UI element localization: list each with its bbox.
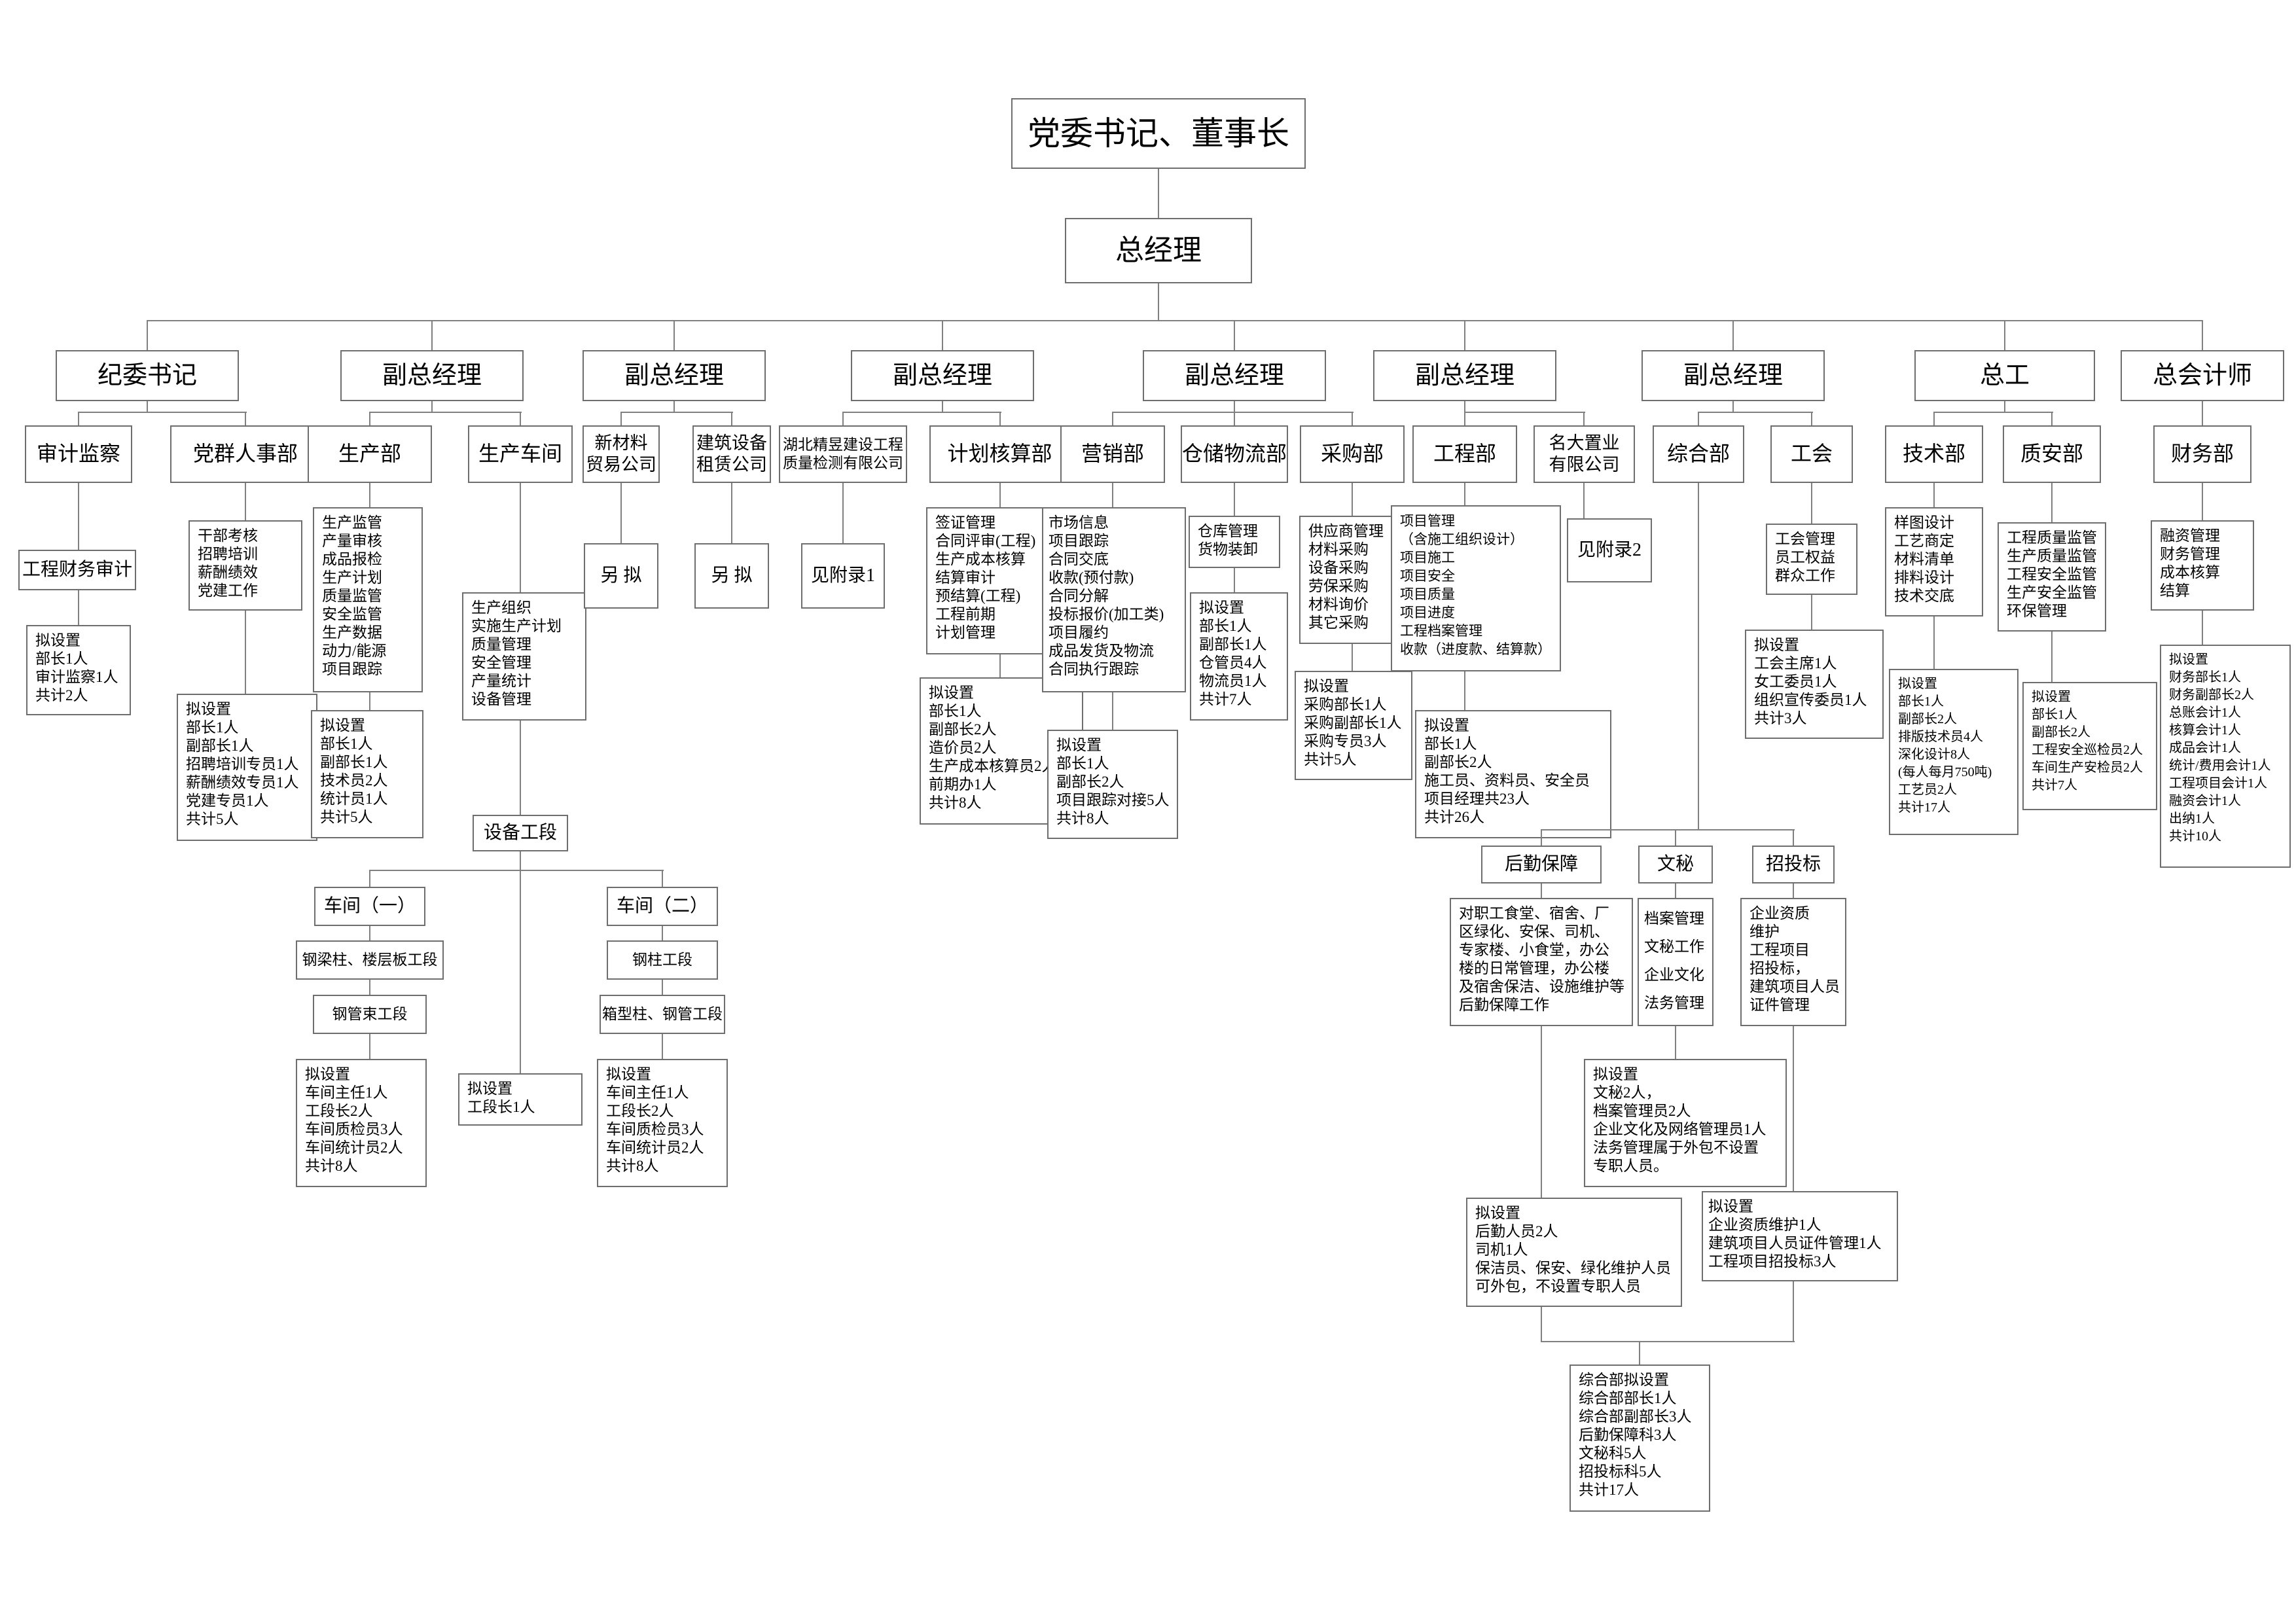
connector [1732,401,1734,412]
staffing-workshop-2: 拟设置 车间主任1人 工段长2人 车间质检员3人 车间统计员2人 共计8人 [597,1059,728,1187]
connector [245,611,246,694]
connector [431,321,433,350]
connector [1234,483,1235,516]
connector [1352,412,1353,425]
connector [1352,483,1353,516]
connector [1698,483,1699,830]
connector [1811,595,1812,630]
node-chief-accountant: 总会计师 [2121,350,2284,401]
note-see-appendix-1: 见附录1 [801,543,885,609]
connector [78,483,79,550]
connector [1675,830,1676,846]
connector [842,412,1001,413]
node-steel-column-section: 钢柱工段 [607,940,718,980]
staffing-production-dept: 拟设置 部长1人 副部长1人 技术员2人 统计员1人 共计5人 [311,710,423,838]
connector [1541,829,1795,830]
staffing-technology: 拟设置 部长1人 副部长2人 排版技术员4人 深化设计8人 (每人每月750吨)… [1889,669,2018,835]
node-deputy-gm-3: 副总经理 [851,350,1034,401]
connector [1464,412,1585,413]
connector [731,412,732,425]
node-deputy-gm-6: 副总经理 [1641,350,1825,401]
connector [1698,412,1699,425]
connector [662,980,663,995]
connector [2202,483,2203,520]
connector [842,412,844,425]
node-new-material-trading-co: 新材料 贸易公司 [583,425,660,483]
node-workshop-2: 车间（二） [607,887,718,926]
connector [2051,632,2053,682]
connector [1639,1342,1640,1364]
connector [673,401,675,412]
node-production-workshop: 生产车间 [468,425,573,483]
duties-production-workshop: 生产组织 实施生产计划 质量管理 安全管理 产量统计 设备管理 [462,592,586,721]
connector [1541,1341,1795,1342]
duties-bidding: 企业资质 维护 工程项目 招投标， 建筑项目人员 证件管理 [1740,898,1846,1026]
connector [1583,483,1585,518]
connector [620,412,733,413]
duties-quality-safety: 工程质量监管 生产质量监管 工程安全监管 生产安全监管 环保管理 [1998,522,2106,632]
connector [673,321,675,350]
org-chart: 党委书记、董事长 总经理 纪委书记 副总经理 副总经理 副总经理 副总经理 副总… [0,0,2296,1623]
connector [1234,401,1235,425]
connector [369,1034,370,1059]
connector [1675,883,1676,898]
connector [1541,830,1542,846]
duties-warehouse-logistics: 仓库管理 货物装卸 [1189,516,1280,568]
connector [2202,321,2203,350]
connector [369,926,370,940]
connector [620,412,622,425]
connector [369,692,370,710]
connector [1793,830,1794,846]
node-box-column-pipe-section: 箱型柱、钢管工段 [600,995,725,1034]
connector [2004,401,2005,412]
node-bidding: 招投标 [1752,846,1835,883]
connector [245,483,246,520]
connector [1933,483,1935,507]
node-secretarial: 文秘 [1638,846,1713,883]
node-technology-dept: 技术部 [1885,425,1983,483]
node-mingda-realty-co: 名大置业 有限公司 [1534,425,1635,483]
duties-purchasing: 供应商管理 材料采购 设备采购 劳保采购 材料询价 其它采购 [1299,516,1405,644]
connector [999,654,1001,677]
connector [1933,616,1935,669]
node-pipe-bundle-section: 钢管束工段 [313,995,427,1034]
node-planning-accounting-dept: 计划核算部 [929,425,1070,483]
connector [520,721,521,815]
connector [78,590,79,625]
node-equipment-section: 设备工段 [473,815,568,851]
staffing-logistics-support: 拟设置 后勤人员2人 司机1人 保洁员、保安、绿化维护人员 可外包，不设置专职人… [1466,1198,1682,1307]
connector [1112,483,1113,507]
connector [2051,412,2053,425]
connector [78,412,247,413]
note-to-be-drafted-2: 另 拟 [694,543,769,609]
staffing-audit: 拟设置 部长1人 审计监察1人 共计2人 [26,625,131,715]
connector [147,321,148,350]
connector [999,412,1001,425]
connector [78,412,79,425]
connector [1698,412,1813,413]
duties-engineering: 项目管理 （含施工组织设计） 项目施工 项目安全 项目质量 项目进度 工程档案管… [1391,505,1561,671]
connector [731,483,732,543]
duties-secretarial: 档案管理 文秘工作 企业文化 法务管理 [1638,898,1713,1026]
note-see-appendix-2: 见附录2 [1567,518,1652,582]
connector [1112,412,1354,413]
connector [620,483,622,543]
connector [520,851,521,1073]
connector [1541,883,1542,898]
connector [1793,1026,1794,1191]
staffing-engineering: 拟设置 部长1人 副部长2人 施工员、资料员、安全员 项目经理共23人 共计26… [1415,710,1611,838]
note-to-be-drafted-1: 另 拟 [584,543,658,609]
staffing-equipment-section: 拟设置 工段长1人 [458,1073,583,1126]
connector [1793,883,1794,898]
duties-party-hr: 干部考核 招聘培训 薪酬绩效 党建工作 [188,520,302,611]
connector [662,926,663,940]
connector [1811,412,1812,425]
connector [1464,321,1465,350]
node-production-dept: 生产部 [308,425,432,483]
connector [1933,412,1935,425]
node-deputy-gm-1: 副总经理 [340,350,524,401]
node-chief-engineer: 总工 [1914,350,2095,401]
duties-technology: 样图设计 工艺商定 材料清单 排料设计 技术交底 [1885,507,1983,616]
node-general-manager: 总经理 [1065,218,1252,283]
node-audit-supervision: 审计监察 [25,425,132,483]
staffing-party-hr: 拟设置 部长1人 副部长1人 招聘培训专员1人 薪酬绩效专员1人 党建专员1人 … [177,694,317,841]
staffing-finance: 拟设置 财务部长1人 财务副部长2人 总账会计1人 核算会计1人 成品会计1人 … [2160,645,2291,868]
connector [1933,412,2053,413]
connector [369,412,370,425]
staffing-workshop-1: 拟设置 车间主任1人 工段长2人 车间质检员3人 车间统计员2人 共计8人 [296,1059,427,1187]
node-project-finance-audit: 工程财务审计 [18,550,136,590]
connector [1583,412,1585,425]
node-deputy-gm-2: 副总经理 [583,350,766,401]
node-deputy-gm-5: 副总经理 [1373,350,1556,401]
connector [942,401,943,412]
connector [1112,412,1113,425]
node-discipline-secretary: 纪委书记 [56,350,239,401]
connector [369,980,370,995]
node-party-mass-hr: 党群人事部 [170,425,321,483]
connector [1234,321,1235,350]
connector [1675,1026,1676,1059]
connector [942,321,943,350]
connector [1234,568,1235,592]
node-marketing-dept: 营销部 [1060,425,1165,483]
duties-production-dept: 生产监管 产量审核 成品报检 生产计划 质量监管 安全监管 生产数据 动力/能源… [313,507,423,692]
connector [1464,401,1465,425]
connector [1158,169,1159,218]
node-labor-union: 工会 [1770,425,1853,483]
connector [369,483,370,507]
connector [520,483,521,592]
connector [1464,671,1465,710]
connector [842,483,844,543]
connector [520,412,521,425]
connector [245,412,246,425]
node-warehouse-logistics-dept: 仓储物流部 [1181,425,1288,483]
duties-labor-union: 工会管理 员工权益 群众工作 [1766,524,1857,595]
staffing-warehouse-logistics: 拟设置 部长1人 副部长1人 仓管员4人 物流员1人 共计7人 [1190,592,1288,721]
staffing-bidding: 拟设置 企业资质维护1人 建筑项目人员证件管理1人 工程项目招投标3人 [1702,1191,1898,1281]
node-hubei-jingyu-co: 湖北精昱建设工程 质量检测有限公司 [779,425,907,483]
connector [999,483,1001,507]
connector [1541,1026,1542,1198]
connector [1541,1307,1542,1342]
staffing-purchasing: 拟设置 采购部长1人 采购副部长1人 采购专员3人 共计5人 [1295,671,1412,780]
node-general-affairs-dept: 综合部 [1653,425,1744,483]
duties-logistics-support: 对职工食堂、宿舍、厂 区绿化、安保、司机、 专家楼、小食堂，办公 楼的日常管理，… [1450,898,1633,1026]
connector [2004,321,2005,350]
node-logistics-support: 后勤保障 [1481,846,1602,883]
connector [147,401,148,412]
connector [1464,483,1465,505]
node-purchasing-dept: 采购部 [1300,425,1405,483]
connector [1732,321,1734,350]
connector [2202,401,2203,425]
staffing-labor-union: 拟设置 工会主席1人 女工委员1人 组织宣传委员1人 共计3人 [1745,630,1884,739]
connector [431,401,433,412]
connector [1793,1281,1794,1342]
node-equipment-leasing-co: 建筑设备 租赁公司 [692,425,771,483]
node-workshop-1: 车间（一） [314,887,425,926]
connector [1352,644,1353,671]
duties-finance: 融资管理 财务管理 成本核算 结算 [2151,520,2254,611]
node-finance-dept: 财务部 [2153,425,2251,483]
connector [1112,692,1113,730]
connector [1158,283,1159,321]
connector [369,412,522,413]
staffing-marketing: 拟设置 部长1人 副部长2人 项目跟踪对接5人 共计8人 [1047,730,1178,839]
duties-marketing: 市场信息 项目跟踪 合同交底 收款(预付款) 合同分解 投标报价(加工类) 项目… [1042,507,1186,692]
connector [147,320,2203,321]
staffing-quality-safety: 拟设置 部长1人 副部长2人 工程安全巡检员2人 车间生产安检员2人 共计7人 [2022,682,2157,810]
node-chairman: 党委书记、董事长 [1011,98,1306,169]
staffing-secretarial: 拟设置 文秘2人， 档案管理员2人 企业文化及网络管理员1人 法务管理属于外包不… [1584,1059,1787,1187]
node-quality-safety-dept: 质安部 [2003,425,2101,483]
connector [2202,611,2203,645]
connector [1811,483,1812,524]
connector [662,870,663,887]
node-beam-column-slab-section: 钢梁柱、楼层板工段 [296,940,444,980]
staffing-general-affairs-summary: 综合部拟设置 综合部部长1人 综合部副部长3人 后勤保障科3人 文秘科5人 招投… [1570,1364,1710,1512]
connector [2051,483,2053,522]
node-deputy-gm-4: 副总经理 [1143,350,1326,401]
node-engineering-dept: 工程部 [1412,425,1517,483]
connector [662,1034,663,1059]
connector [369,870,664,871]
connector [369,870,370,887]
